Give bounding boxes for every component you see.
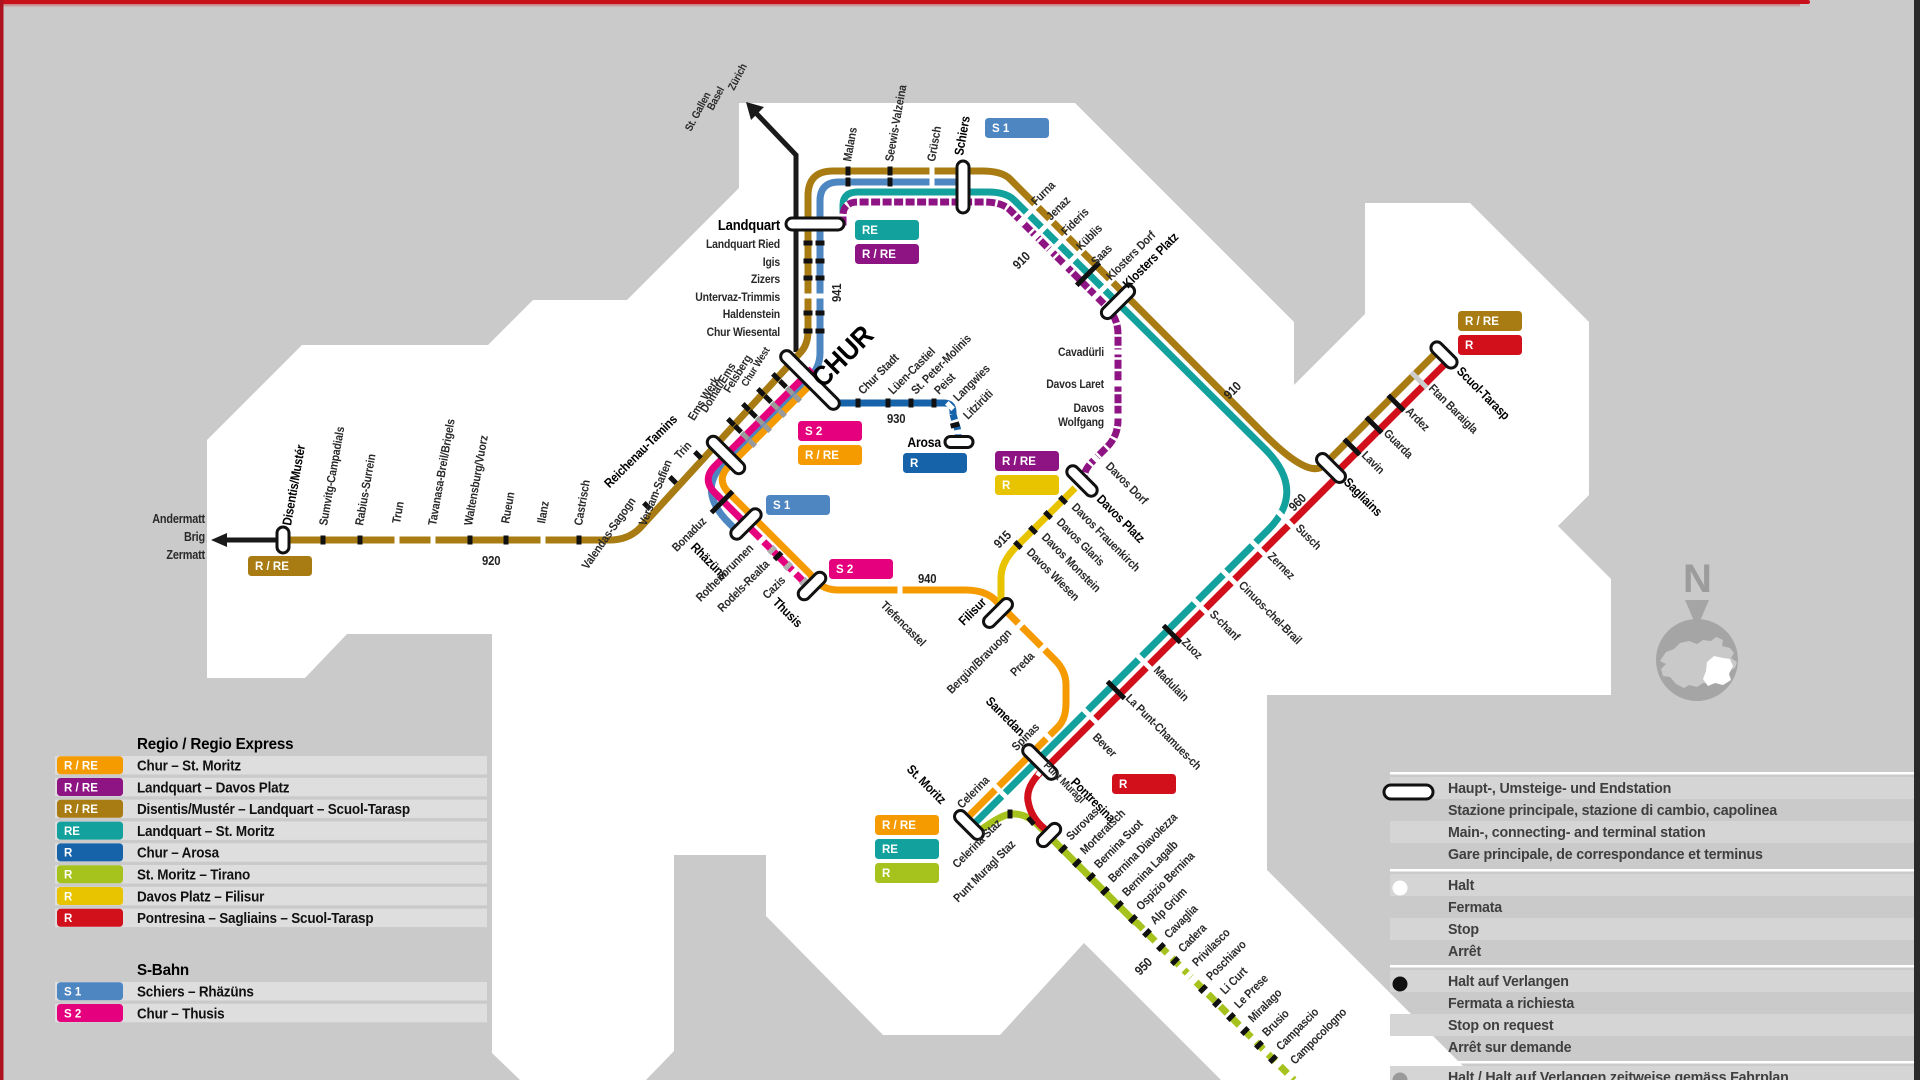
svg-text:Chur – Arosa: Chur – Arosa xyxy=(137,844,219,861)
svg-text:S 2: S 2 xyxy=(836,564,853,576)
svg-text:Landquart Ried: Landquart Ried xyxy=(706,238,780,251)
svg-text:Landquart – St. Moritz: Landquart – St. Moritz xyxy=(137,822,275,839)
svg-text:940: 940 xyxy=(918,571,937,586)
svg-text:Halt auf Verlangen: Halt auf Verlangen xyxy=(1448,974,1569,990)
svg-text:R / RE: R / RE xyxy=(64,804,98,816)
svg-text:Chur Wiesental: Chur Wiesental xyxy=(707,326,780,339)
svg-text:Stop on request: Stop on request xyxy=(1448,1018,1554,1034)
svg-text:Regio / Regio Express: Regio / Regio Express xyxy=(137,736,294,753)
svg-text:Wolfgang: Wolfgang xyxy=(1058,416,1104,429)
svg-text:S 1: S 1 xyxy=(992,123,1010,135)
svg-text:Arrêt: Arrêt xyxy=(1448,944,1481,960)
svg-text:R / RE: R / RE xyxy=(805,450,839,462)
svg-text:R: R xyxy=(910,458,919,470)
svg-text:R / RE: R / RE xyxy=(882,820,916,832)
svg-text:R: R xyxy=(882,868,891,880)
svg-text:R: R xyxy=(64,891,73,903)
svg-text:Disentis/Mustér – Landquart –: Disentis/Mustér – Landquart – Scuol-Tara… xyxy=(137,801,410,818)
svg-text:Fermata: Fermata xyxy=(1448,900,1503,916)
svg-text:R: R xyxy=(64,848,73,860)
svg-text:Zermatt: Zermatt xyxy=(166,548,205,562)
svg-text:S 2: S 2 xyxy=(805,426,822,438)
svg-text:R / RE: R / RE xyxy=(64,761,98,773)
svg-text:Untervaz-Trimmis: Untervaz-Trimmis xyxy=(695,291,780,304)
svg-text:Stop: Stop xyxy=(1448,922,1479,938)
svg-text:S 1: S 1 xyxy=(64,987,82,999)
svg-text:S 1: S 1 xyxy=(773,500,791,512)
svg-text:Halt: Halt xyxy=(1448,878,1474,894)
svg-text:RE: RE xyxy=(882,844,898,856)
svg-text:Chur – St. Moritz: Chur – St. Moritz xyxy=(137,757,241,774)
svg-text:Chur – Thusis: Chur – Thusis xyxy=(137,1005,225,1022)
svg-text:Stazione principale, stazione: Stazione principale, stazione di cambio,… xyxy=(1448,803,1778,819)
svg-text:Haupt-, Umsteige- und Endstati: Haupt-, Umsteige- und Endstation xyxy=(1448,781,1671,797)
svg-text:Davos Laret: Davos Laret xyxy=(1046,378,1104,391)
svg-text:Gare principale, de correspond: Gare principale, de correspondance et te… xyxy=(1448,847,1763,863)
svg-text:S 2: S 2 xyxy=(64,1008,81,1020)
svg-text:R / RE: R / RE xyxy=(1465,316,1499,328)
svg-text:Landquart – Davos Platz: Landquart – Davos Platz xyxy=(137,779,290,796)
svg-text:R / RE: R / RE xyxy=(255,561,289,573)
svg-text:Schiers – Rhäzüns: Schiers – Rhäzüns xyxy=(137,983,254,1000)
svg-text:R: R xyxy=(64,870,73,882)
svg-text:Pontresina – Sagliains – Scuol: Pontresina – Sagliains – Scuol-Tarasp xyxy=(137,910,373,927)
svg-text:Igis: Igis xyxy=(763,256,780,269)
svg-text:Landquart: Landquart xyxy=(718,216,781,233)
svg-text:R / RE: R / RE xyxy=(64,782,98,794)
svg-text:Haldenstein: Haldenstein xyxy=(723,308,780,321)
svg-text:RE: RE xyxy=(64,826,80,838)
svg-text:Fermata a richiesta: Fermata a richiesta xyxy=(1448,996,1575,1012)
svg-text:R: R xyxy=(1119,779,1128,791)
svg-text:Davos Platz – Filisur: Davos Platz – Filisur xyxy=(137,888,265,905)
svg-text:Arosa: Arosa xyxy=(907,434,941,450)
svg-text:R / RE: R / RE xyxy=(862,249,896,261)
svg-text:Halt / Halt auf Verlangen zeit: Halt / Halt auf Verlangen zeitweise gemä… xyxy=(1448,1070,1789,1080)
svg-text:R / RE: R / RE xyxy=(1002,456,1036,468)
svg-text:N: N xyxy=(1683,557,1712,601)
svg-text:930: 930 xyxy=(887,411,906,426)
svg-text:R: R xyxy=(64,913,73,925)
svg-text:RE: RE xyxy=(862,225,878,237)
svg-text:Brig: Brig xyxy=(184,530,205,544)
svg-text:Zizers: Zizers xyxy=(751,273,780,286)
svg-text:941: 941 xyxy=(829,283,844,302)
svg-text:920: 920 xyxy=(482,553,501,568)
svg-text:R: R xyxy=(1002,480,1011,492)
svg-text:St. Moritz – Tirano: St. Moritz – Tirano xyxy=(137,866,250,883)
svg-text:R: R xyxy=(1465,340,1474,352)
svg-text:Davos: Davos xyxy=(1074,402,1104,415)
svg-text:Cavadürli: Cavadürli xyxy=(1058,346,1104,359)
svg-text:Andermatt: Andermatt xyxy=(152,512,205,526)
svg-text:S-Bahn: S-Bahn xyxy=(137,962,189,979)
svg-text:Arrêt sur demande: Arrêt sur demande xyxy=(1448,1040,1571,1056)
svg-text:Main-, connecting- and termina: Main-, connecting- and terminal station xyxy=(1448,825,1706,841)
